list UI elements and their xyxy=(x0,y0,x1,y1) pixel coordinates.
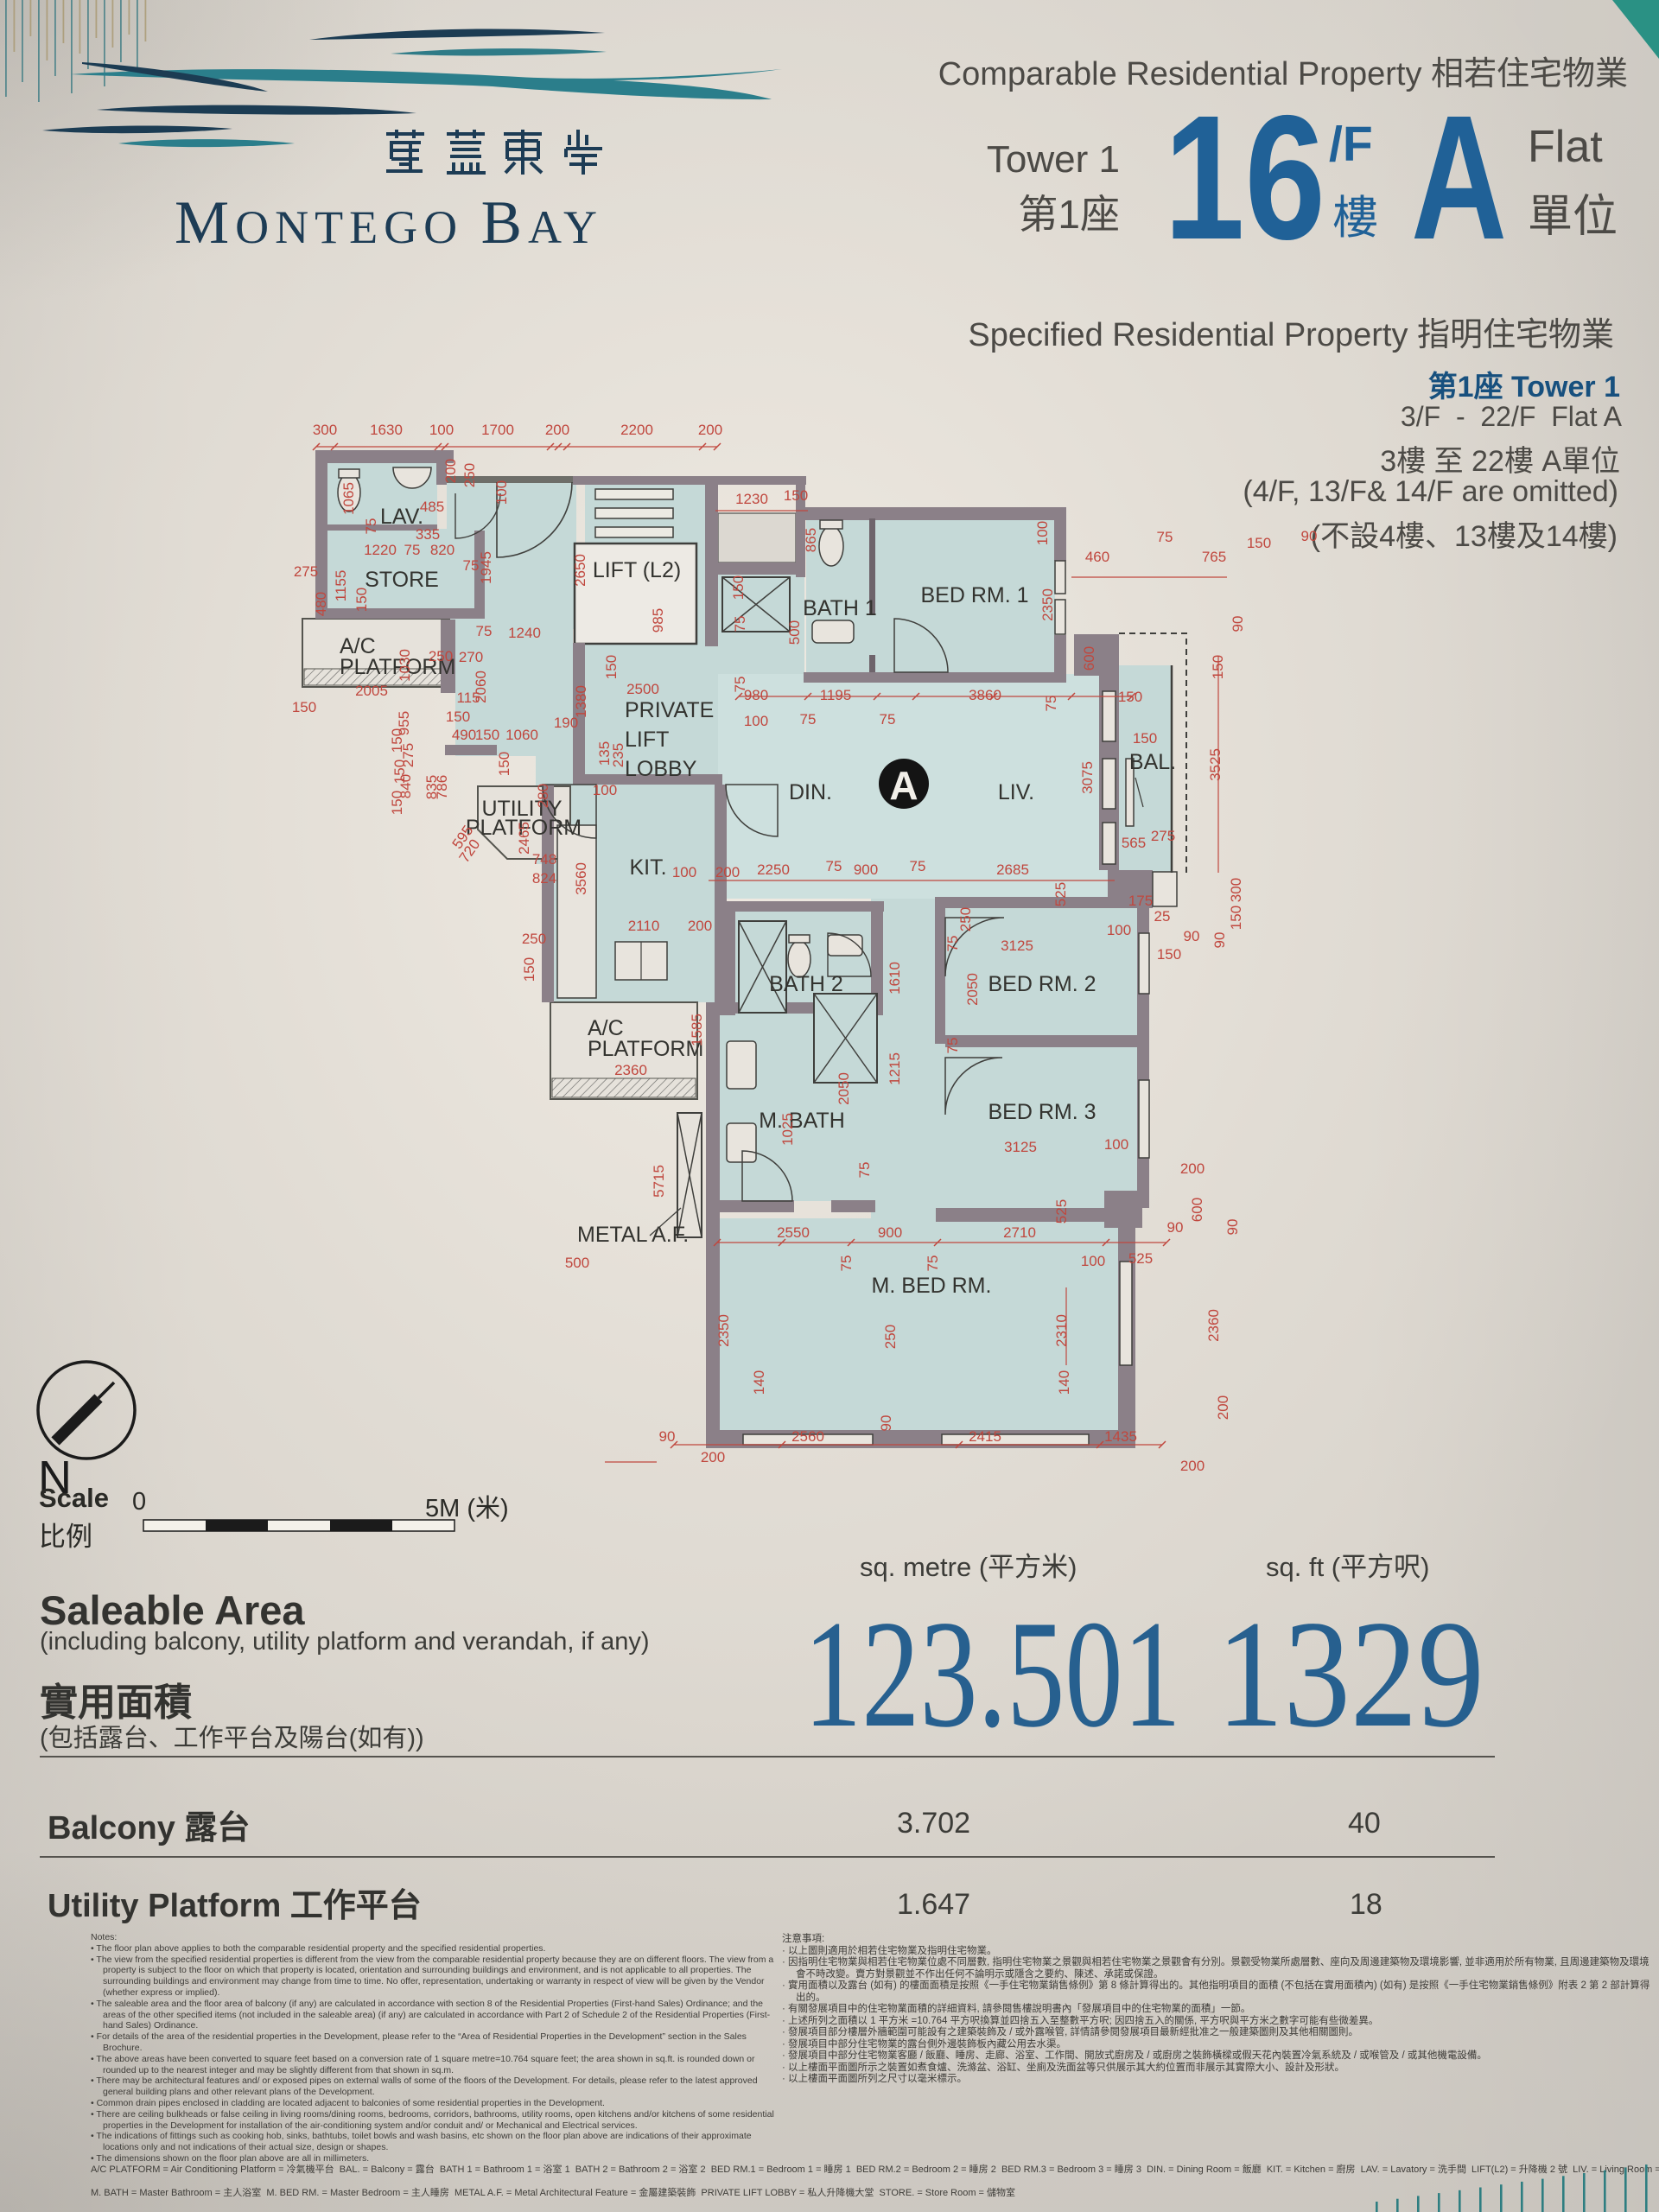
svg-text:75: 75 xyxy=(476,623,493,639)
svg-text:1030: 1030 xyxy=(397,649,413,682)
svg-text:90: 90 xyxy=(1211,932,1228,949)
svg-text:150: 150 xyxy=(1133,730,1157,747)
svg-text:490: 490 xyxy=(452,727,476,743)
svg-text:200: 200 xyxy=(701,1449,725,1465)
svg-text:25: 25 xyxy=(1154,908,1171,925)
svg-text:150: 150 xyxy=(475,727,499,743)
svg-text:3075: 3075 xyxy=(1079,761,1096,794)
svg-text:200: 200 xyxy=(1180,1458,1205,1474)
svg-text:LIFT: LIFT xyxy=(625,728,669,752)
svg-text:90: 90 xyxy=(1230,616,1246,632)
svg-text:150: 150 xyxy=(353,588,370,612)
svg-text:M. BED RM.: M. BED RM. xyxy=(872,1274,992,1298)
svg-text:200: 200 xyxy=(1180,1160,1205,1177)
svg-text:786: 786 xyxy=(434,775,450,799)
svg-text:BED RM. 2: BED RM. 2 xyxy=(988,972,1096,996)
svg-text:100: 100 xyxy=(493,480,510,505)
svg-text:90: 90 xyxy=(1301,528,1318,544)
svg-text:150: 150 xyxy=(1118,689,1142,705)
svg-text:2005: 2005 xyxy=(355,683,388,699)
svg-text:150: 150 xyxy=(521,957,537,982)
svg-text:480: 480 xyxy=(313,592,329,616)
svg-text:150: 150 xyxy=(1210,655,1226,679)
svg-text:250: 250 xyxy=(882,1325,899,1349)
svg-text:2360: 2360 xyxy=(1205,1309,1222,1342)
svg-text:M. BATH: M. BATH xyxy=(759,1109,845,1133)
svg-text:75: 75 xyxy=(363,518,379,535)
svg-text:LOBBY: LOBBY xyxy=(625,757,697,781)
svg-text:2710: 2710 xyxy=(1003,1224,1036,1241)
svg-text:75: 75 xyxy=(800,711,817,728)
svg-text:BATH 2: BATH 2 xyxy=(769,972,843,996)
svg-text:275: 275 xyxy=(1151,828,1175,844)
svg-text:75: 75 xyxy=(910,858,926,874)
svg-text:600: 600 xyxy=(1081,646,1097,671)
svg-text:3125: 3125 xyxy=(1004,1139,1037,1155)
svg-text:250: 250 xyxy=(522,931,546,947)
svg-text:75: 75 xyxy=(732,677,748,693)
svg-text:75: 75 xyxy=(925,1255,941,1272)
svg-text:METAL A.F.: METAL A.F. xyxy=(577,1223,689,1247)
svg-text:250: 250 xyxy=(429,648,453,664)
svg-text:150: 150 xyxy=(1247,535,1271,551)
svg-text:1240: 1240 xyxy=(508,625,541,641)
svg-text:150: 150 xyxy=(446,709,470,725)
svg-text:BED RM. 1: BED RM. 1 xyxy=(920,583,1028,607)
svg-text:1060: 1060 xyxy=(505,727,538,743)
svg-text:200: 200 xyxy=(442,459,459,483)
svg-text:150: 150 xyxy=(730,575,747,600)
svg-text:75: 75 xyxy=(944,1038,961,1054)
svg-text:1230: 1230 xyxy=(735,491,768,507)
svg-text:900: 900 xyxy=(854,861,878,878)
svg-text:100: 100 xyxy=(744,713,768,729)
svg-text:335: 335 xyxy=(416,526,440,543)
svg-text:460: 460 xyxy=(1085,549,1109,565)
svg-text:500: 500 xyxy=(565,1255,589,1271)
svg-text:150: 150 xyxy=(603,655,620,679)
svg-text:2350: 2350 xyxy=(715,1314,732,1347)
svg-text:1380: 1380 xyxy=(573,685,589,718)
svg-text:150: 150 xyxy=(1157,946,1181,963)
svg-text:LIV.: LIV. xyxy=(998,780,1034,804)
svg-text:90: 90 xyxy=(1184,928,1200,944)
svg-text:2200: 2200 xyxy=(620,422,653,438)
svg-text:1630: 1630 xyxy=(370,422,403,438)
svg-text:525: 525 xyxy=(1053,1199,1070,1224)
svg-text:100: 100 xyxy=(672,864,696,880)
svg-text:2310: 2310 xyxy=(1053,1314,1070,1347)
svg-text:150: 150 xyxy=(292,699,316,715)
svg-text:1195: 1195 xyxy=(820,687,852,703)
svg-text:PRIVATE: PRIVATE xyxy=(625,698,714,722)
svg-text:PLATFORM: PLATFORM xyxy=(588,1037,703,1061)
svg-text:1585: 1585 xyxy=(689,1014,705,1046)
svg-text:2550: 2550 xyxy=(777,1224,810,1241)
svg-text:2560: 2560 xyxy=(791,1428,824,1445)
svg-text:75: 75 xyxy=(1157,529,1173,545)
svg-text:75: 75 xyxy=(838,1255,855,1272)
svg-text:100: 100 xyxy=(1034,521,1051,545)
svg-text:2350: 2350 xyxy=(1039,588,1056,621)
svg-text:2685: 2685 xyxy=(996,861,1029,878)
svg-text:765: 765 xyxy=(1202,549,1226,565)
svg-text:235: 235 xyxy=(610,743,626,767)
svg-text:LAV.: LAV. xyxy=(380,505,423,529)
svg-text:75: 75 xyxy=(826,858,842,874)
svg-text:175: 175 xyxy=(1128,893,1153,909)
svg-text:100: 100 xyxy=(429,422,454,438)
svg-text:600: 600 xyxy=(1189,1198,1205,1222)
svg-text:1155: 1155 xyxy=(333,570,349,602)
svg-text:BATH 1: BATH 1 xyxy=(803,596,877,620)
svg-text:2250: 2250 xyxy=(757,861,790,878)
svg-text:75: 75 xyxy=(880,711,896,728)
svg-text:2050: 2050 xyxy=(964,973,981,1006)
svg-text:75: 75 xyxy=(463,557,480,574)
svg-text:2500: 2500 xyxy=(626,681,659,697)
svg-text:2050: 2050 xyxy=(836,1072,852,1105)
svg-text:75: 75 xyxy=(856,1162,873,1179)
svg-text:3525: 3525 xyxy=(1207,748,1224,781)
svg-text:100: 100 xyxy=(593,782,617,798)
svg-text:150: 150 xyxy=(1228,906,1244,930)
svg-text:200: 200 xyxy=(715,864,740,880)
svg-text:BED RM. 3: BED RM. 3 xyxy=(988,1100,1096,1124)
svg-text:90: 90 xyxy=(878,1415,894,1432)
svg-text:75: 75 xyxy=(732,616,748,632)
svg-text:STORE: STORE xyxy=(365,568,439,592)
svg-text:90: 90 xyxy=(659,1428,676,1445)
svg-text:KIT.: KIT. xyxy=(629,855,666,880)
svg-text:1945: 1945 xyxy=(478,551,494,584)
svg-text:250: 250 xyxy=(957,907,974,931)
svg-text:824: 824 xyxy=(532,870,556,887)
svg-text:75: 75 xyxy=(1043,696,1059,712)
svg-text:500: 500 xyxy=(786,620,803,645)
svg-text:748: 748 xyxy=(532,851,556,868)
svg-text:2360: 2360 xyxy=(614,1062,647,1078)
svg-text:A: A xyxy=(889,763,918,808)
svg-text:485: 485 xyxy=(420,499,444,515)
svg-text:2415: 2415 xyxy=(969,1428,1001,1445)
svg-text:2060: 2060 xyxy=(473,671,489,703)
svg-text:3860: 3860 xyxy=(969,687,1001,703)
svg-text:565: 565 xyxy=(1122,835,1146,851)
svg-text:1610: 1610 xyxy=(887,962,903,995)
svg-text:525: 525 xyxy=(1052,882,1069,906)
svg-text:1065: 1065 xyxy=(340,482,357,515)
svg-text:90: 90 xyxy=(1224,1219,1241,1236)
svg-text:140: 140 xyxy=(751,1370,767,1395)
svg-text:200: 200 xyxy=(698,422,722,438)
svg-text:200: 200 xyxy=(1215,1395,1231,1420)
svg-text:150: 150 xyxy=(784,487,808,504)
svg-text:820: 820 xyxy=(430,542,454,558)
svg-text:DIN.: DIN. xyxy=(789,780,832,804)
svg-text:865: 865 xyxy=(803,528,819,552)
svg-text:900: 900 xyxy=(878,1224,902,1241)
svg-text:985: 985 xyxy=(650,608,666,632)
svg-text:3125: 3125 xyxy=(1001,938,1033,954)
svg-text:100: 100 xyxy=(1081,1253,1105,1269)
svg-text:1215: 1215 xyxy=(887,1052,903,1085)
svg-text:90: 90 xyxy=(1167,1219,1184,1236)
svg-text:2650: 2650 xyxy=(572,554,588,587)
svg-text:275: 275 xyxy=(294,563,318,580)
svg-text:300: 300 xyxy=(313,422,337,438)
svg-text:3560: 3560 xyxy=(573,862,589,895)
svg-text:200: 200 xyxy=(545,422,569,438)
svg-text:100: 100 xyxy=(1107,922,1131,938)
svg-text:75: 75 xyxy=(404,542,421,558)
svg-text:2110: 2110 xyxy=(628,918,660,934)
svg-text:2465: 2465 xyxy=(516,822,532,855)
svg-text:250: 250 xyxy=(461,463,478,487)
svg-text:1025: 1025 xyxy=(779,1113,796,1146)
svg-text:100: 100 xyxy=(1104,1136,1128,1153)
svg-text:5715: 5715 xyxy=(651,1165,667,1198)
svg-text:1435: 1435 xyxy=(1104,1428,1137,1445)
svg-text:300: 300 xyxy=(1228,878,1244,902)
svg-text:1220: 1220 xyxy=(364,542,397,558)
svg-text:140: 140 xyxy=(1056,1370,1072,1395)
svg-text:280: 280 xyxy=(535,784,551,808)
svg-text:150: 150 xyxy=(496,752,512,776)
svg-text:150: 150 xyxy=(389,791,405,815)
svg-text:525: 525 xyxy=(1128,1250,1153,1267)
svg-text:BAL.: BAL. xyxy=(1129,750,1176,774)
svg-text:200: 200 xyxy=(688,918,712,934)
svg-text:75: 75 xyxy=(944,936,961,952)
svg-text:270: 270 xyxy=(459,649,483,665)
svg-text:LIFT (L2): LIFT (L2) xyxy=(593,558,681,582)
svg-text:1700: 1700 xyxy=(481,422,514,438)
